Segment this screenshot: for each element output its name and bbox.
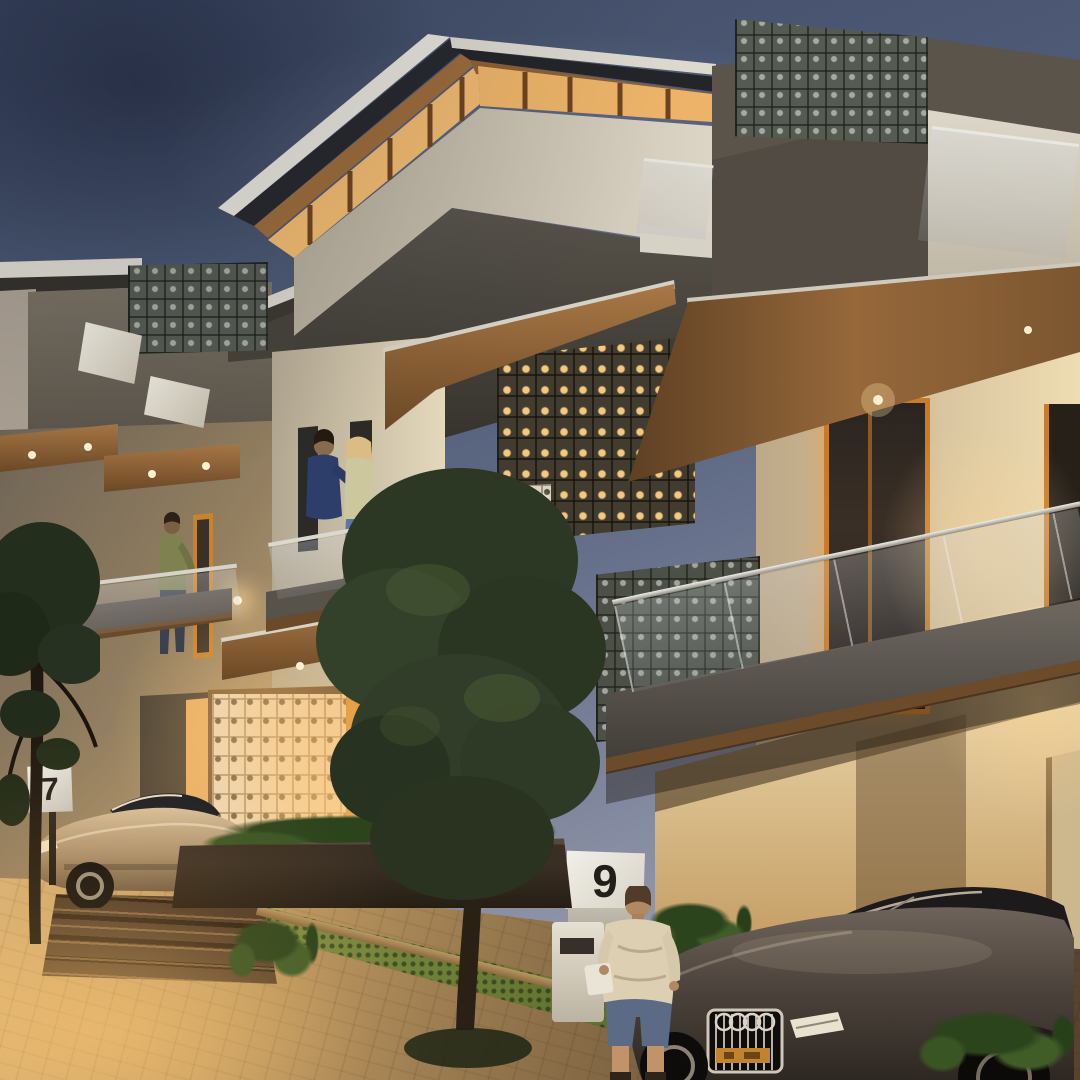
villa-dusk-scene: 9 7 — [0, 0, 1080, 1080]
plants-bottom-right — [908, 1004, 1080, 1080]
tree-center — [310, 440, 610, 1080]
tree-left-edge — [0, 512, 100, 982]
bush-by-steps — [222, 912, 322, 986]
